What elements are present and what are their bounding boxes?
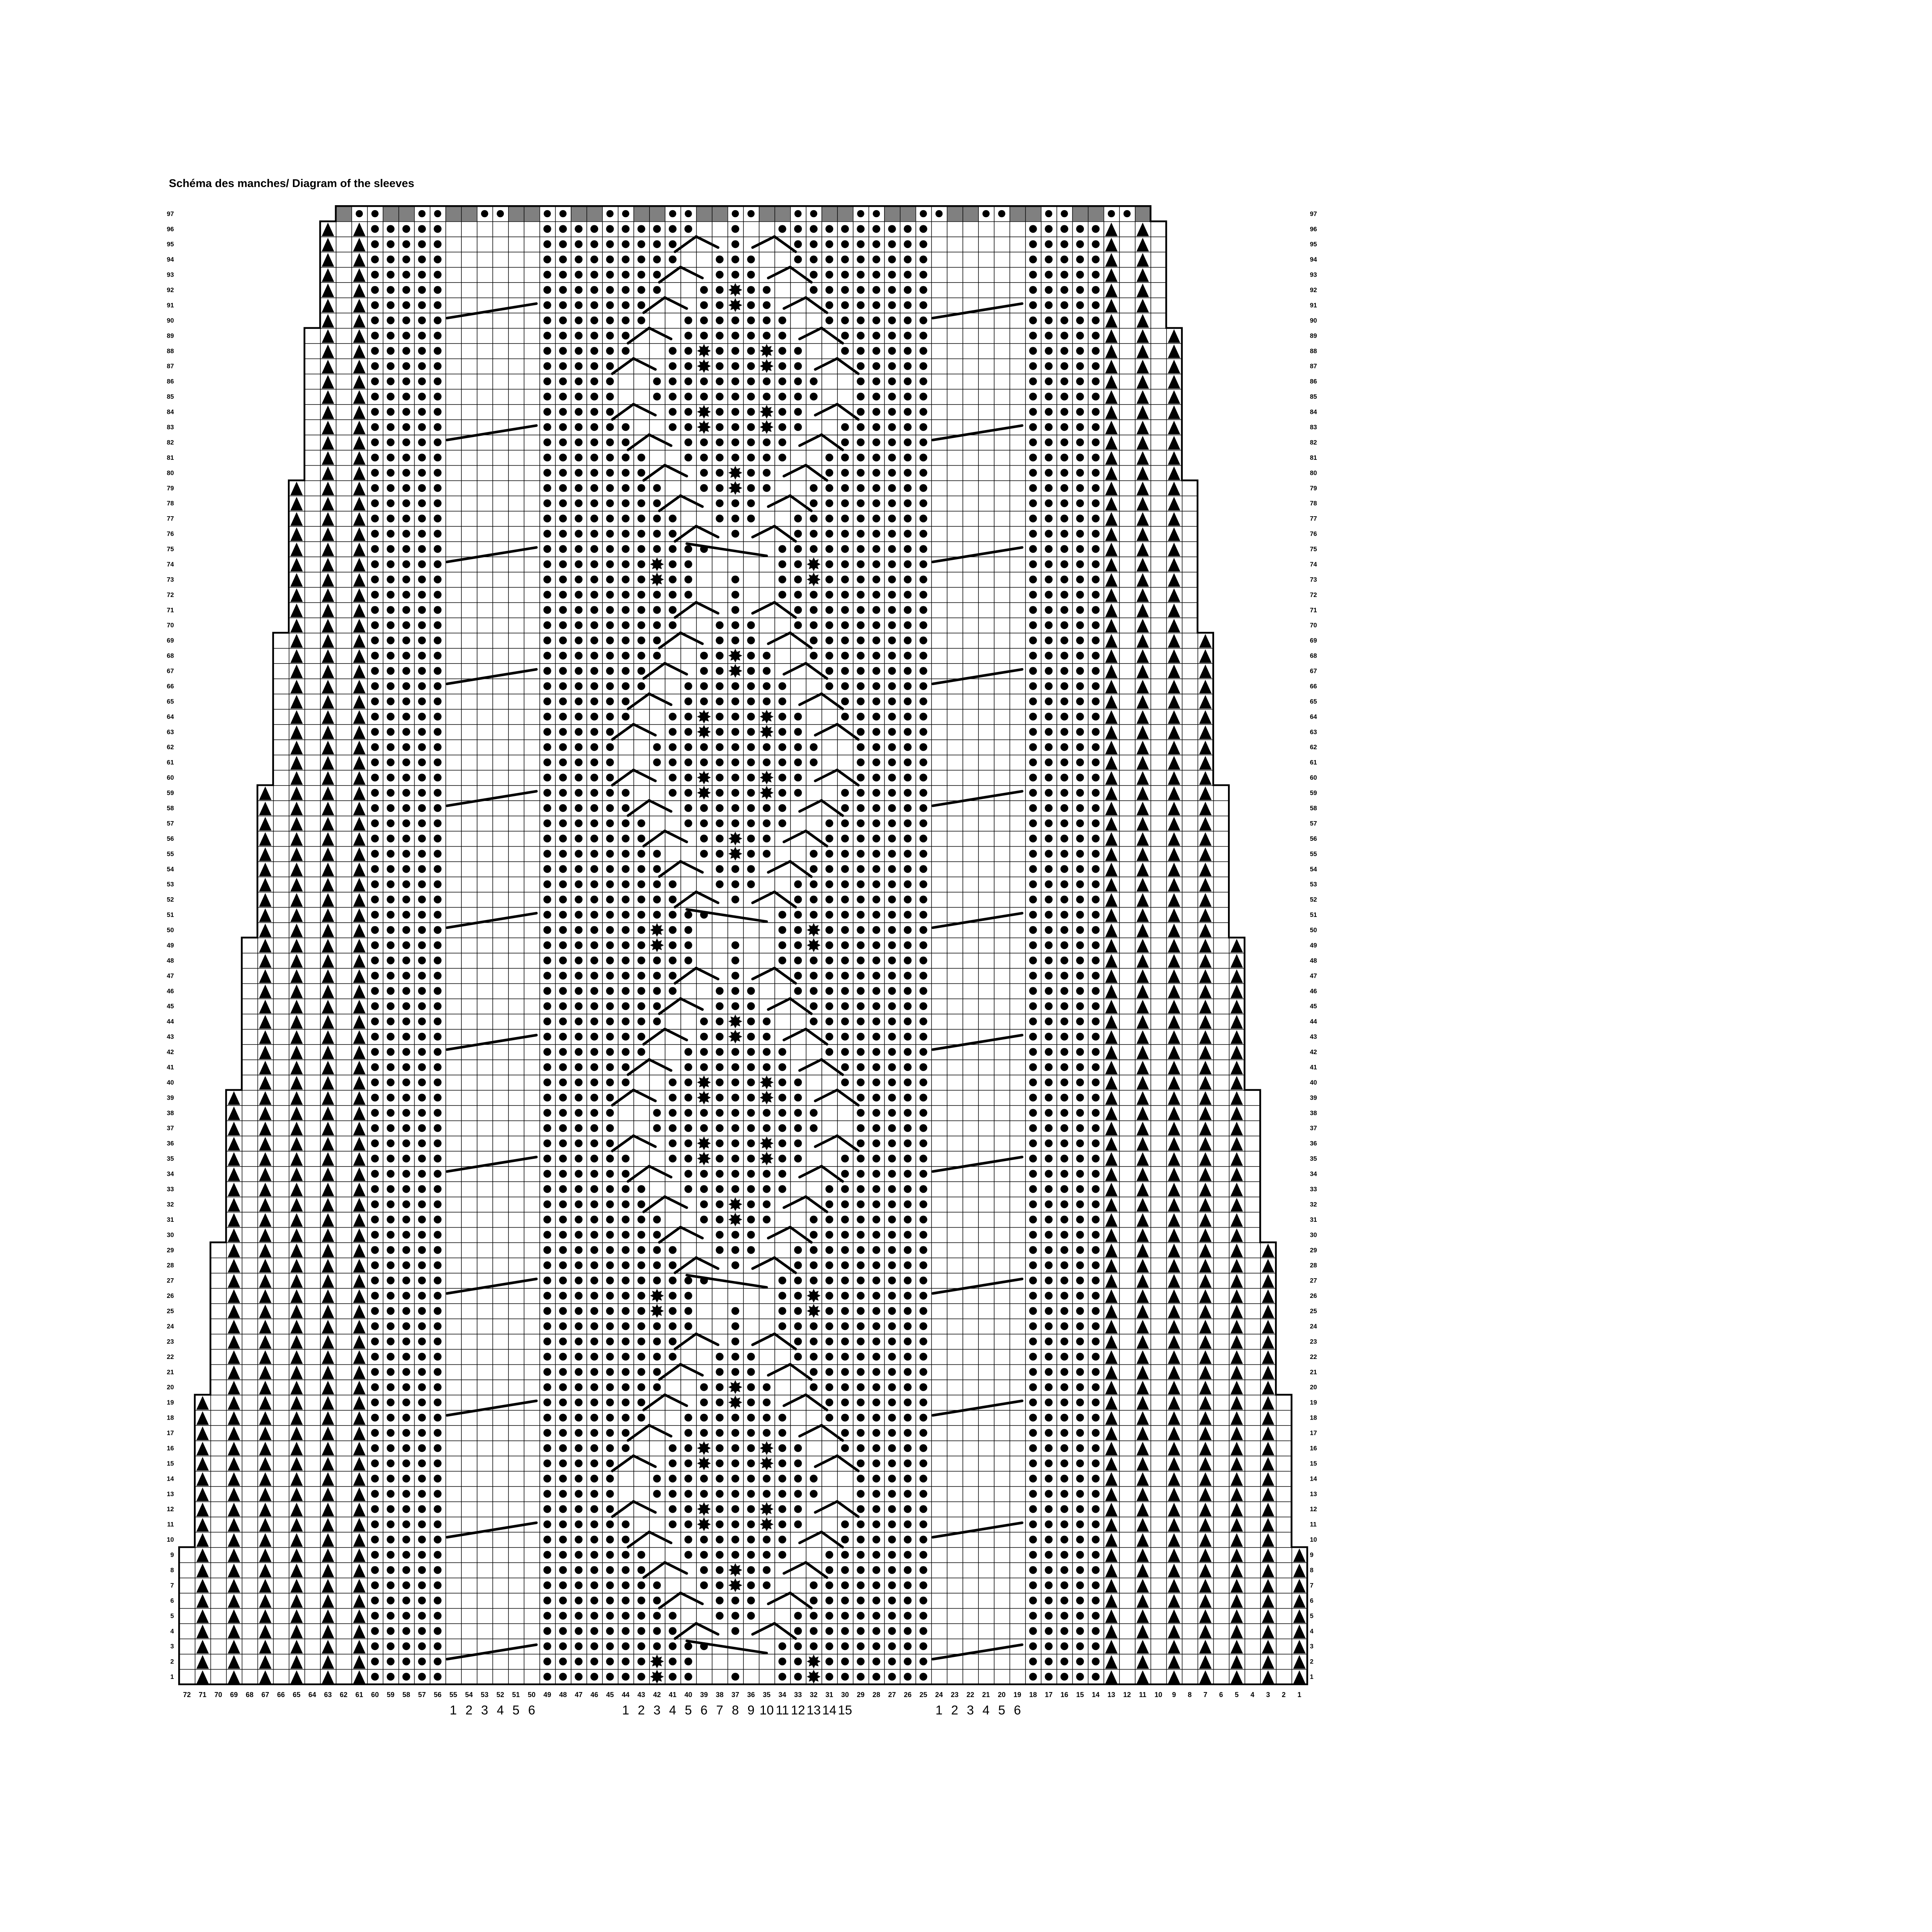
svg-text:29: 29 xyxy=(1310,1247,1317,1254)
svg-text:97: 97 xyxy=(167,211,174,218)
svg-text:69: 69 xyxy=(230,1691,238,1699)
svg-text:46: 46 xyxy=(1310,988,1317,995)
svg-text:38: 38 xyxy=(1310,1110,1317,1117)
svg-text:35: 35 xyxy=(763,1691,770,1699)
svg-text:38: 38 xyxy=(167,1110,174,1117)
svg-text:22: 22 xyxy=(1310,1354,1317,1361)
svg-text:72: 72 xyxy=(167,592,174,599)
svg-text:3: 3 xyxy=(967,1703,974,1717)
svg-text:39: 39 xyxy=(1310,1094,1317,1101)
svg-text:65: 65 xyxy=(1310,698,1317,705)
svg-text:52: 52 xyxy=(1310,896,1317,903)
svg-text:2: 2 xyxy=(638,1703,645,1717)
svg-text:22: 22 xyxy=(167,1354,174,1361)
svg-text:62: 62 xyxy=(167,744,174,751)
svg-text:73: 73 xyxy=(1310,576,1317,583)
svg-text:12: 12 xyxy=(1123,1691,1131,1699)
svg-text:47: 47 xyxy=(1310,973,1317,980)
svg-text:71: 71 xyxy=(199,1691,206,1699)
svg-text:32: 32 xyxy=(1310,1201,1317,1208)
svg-text:91: 91 xyxy=(1310,302,1317,309)
svg-text:75: 75 xyxy=(167,546,174,553)
svg-text:43: 43 xyxy=(167,1034,174,1041)
svg-text:35: 35 xyxy=(167,1155,174,1162)
svg-text:56: 56 xyxy=(1310,835,1317,842)
svg-text:70: 70 xyxy=(214,1691,222,1699)
svg-text:50: 50 xyxy=(1310,927,1317,934)
svg-text:70: 70 xyxy=(1310,622,1317,629)
svg-text:15: 15 xyxy=(1076,1691,1084,1699)
svg-text:26: 26 xyxy=(1310,1293,1317,1299)
svg-text:11: 11 xyxy=(776,1703,789,1717)
svg-text:5: 5 xyxy=(1310,1612,1313,1619)
svg-text:95: 95 xyxy=(167,241,174,248)
svg-text:47: 47 xyxy=(167,973,174,980)
svg-text:85: 85 xyxy=(167,393,174,400)
svg-text:59: 59 xyxy=(167,790,174,797)
svg-text:80: 80 xyxy=(167,469,174,476)
svg-text:72: 72 xyxy=(183,1691,191,1699)
svg-text:51: 51 xyxy=(512,1691,520,1699)
svg-text:61: 61 xyxy=(355,1691,363,1699)
svg-text:12: 12 xyxy=(167,1506,174,1513)
svg-text:81: 81 xyxy=(167,454,174,461)
svg-text:44: 44 xyxy=(167,1018,174,1025)
svg-text:1: 1 xyxy=(1298,1691,1301,1699)
svg-text:15: 15 xyxy=(838,1703,852,1717)
svg-text:30: 30 xyxy=(167,1231,174,1238)
svg-text:2: 2 xyxy=(466,1703,473,1717)
svg-text:52: 52 xyxy=(497,1691,504,1699)
svg-text:13: 13 xyxy=(1310,1491,1317,1498)
svg-text:40: 40 xyxy=(684,1691,692,1699)
svg-text:76: 76 xyxy=(167,531,174,537)
svg-text:41: 41 xyxy=(1310,1064,1317,1071)
svg-text:93: 93 xyxy=(167,272,174,279)
svg-text:40: 40 xyxy=(167,1079,174,1086)
svg-text:13: 13 xyxy=(1107,1691,1115,1699)
svg-text:62: 62 xyxy=(340,1691,347,1699)
svg-text:93: 93 xyxy=(1310,272,1317,279)
svg-text:49: 49 xyxy=(1310,942,1317,949)
svg-text:16: 16 xyxy=(167,1445,174,1452)
svg-text:26: 26 xyxy=(904,1691,912,1699)
svg-text:28: 28 xyxy=(1310,1262,1317,1269)
svg-text:68: 68 xyxy=(167,653,174,660)
svg-text:88: 88 xyxy=(1310,348,1317,355)
svg-text:54: 54 xyxy=(465,1691,473,1699)
svg-text:55: 55 xyxy=(449,1691,457,1699)
svg-text:85: 85 xyxy=(1310,393,1317,400)
svg-text:1: 1 xyxy=(622,1703,629,1717)
svg-text:53: 53 xyxy=(481,1691,488,1699)
svg-text:9: 9 xyxy=(1310,1552,1313,1559)
svg-text:48: 48 xyxy=(167,957,174,964)
svg-text:32: 32 xyxy=(167,1201,174,1208)
svg-text:42: 42 xyxy=(167,1049,174,1056)
svg-text:14: 14 xyxy=(1310,1475,1317,1482)
svg-text:26: 26 xyxy=(167,1293,174,1299)
svg-text:32: 32 xyxy=(810,1691,818,1699)
svg-text:36: 36 xyxy=(167,1140,174,1147)
svg-text:61: 61 xyxy=(1310,759,1317,766)
svg-text:24: 24 xyxy=(167,1323,174,1330)
svg-text:78: 78 xyxy=(1310,500,1317,507)
svg-text:20: 20 xyxy=(1310,1384,1317,1391)
svg-text:37: 37 xyxy=(731,1691,739,1699)
svg-text:48: 48 xyxy=(1310,957,1317,964)
svg-text:95: 95 xyxy=(1310,241,1317,248)
svg-text:19: 19 xyxy=(1310,1399,1317,1406)
svg-text:12: 12 xyxy=(791,1703,805,1717)
svg-text:55: 55 xyxy=(1310,850,1317,857)
svg-text:81: 81 xyxy=(1310,454,1317,461)
svg-text:73: 73 xyxy=(167,576,174,583)
svg-text:1: 1 xyxy=(170,1673,174,1680)
svg-text:79: 79 xyxy=(167,485,174,492)
svg-text:40: 40 xyxy=(1310,1079,1317,1086)
svg-text:7: 7 xyxy=(716,1703,723,1717)
svg-text:5: 5 xyxy=(998,1703,1005,1717)
svg-text:86: 86 xyxy=(1310,378,1317,385)
svg-text:16: 16 xyxy=(1061,1691,1068,1699)
svg-text:34: 34 xyxy=(1310,1171,1317,1178)
svg-text:43: 43 xyxy=(638,1691,645,1699)
svg-text:84: 84 xyxy=(167,409,174,416)
svg-text:84: 84 xyxy=(1310,409,1317,416)
svg-text:17: 17 xyxy=(167,1430,174,1437)
svg-text:78: 78 xyxy=(167,500,174,507)
svg-text:74: 74 xyxy=(167,561,174,568)
svg-text:4: 4 xyxy=(1310,1628,1314,1635)
svg-text:24: 24 xyxy=(1310,1323,1317,1330)
svg-text:9: 9 xyxy=(747,1703,754,1717)
svg-text:20: 20 xyxy=(167,1384,174,1391)
svg-text:57: 57 xyxy=(1310,820,1317,827)
svg-text:39: 39 xyxy=(167,1094,174,1101)
svg-text:31: 31 xyxy=(825,1691,833,1699)
svg-text:86: 86 xyxy=(167,378,174,385)
svg-text:21: 21 xyxy=(167,1369,174,1376)
svg-text:34: 34 xyxy=(779,1691,786,1699)
svg-text:4: 4 xyxy=(669,1703,676,1717)
svg-text:41: 41 xyxy=(167,1064,174,1071)
svg-text:75: 75 xyxy=(1310,546,1317,553)
svg-text:64: 64 xyxy=(308,1691,316,1699)
svg-text:37: 37 xyxy=(1310,1125,1317,1132)
svg-text:12: 12 xyxy=(1310,1506,1317,1513)
svg-text:62: 62 xyxy=(1310,744,1317,751)
svg-text:67: 67 xyxy=(1310,668,1317,675)
svg-text:16: 16 xyxy=(1310,1445,1317,1452)
svg-text:Schéma des manches/ Diagram of: Schéma des manches/ Diagram of the sleev… xyxy=(169,177,414,190)
svg-text:33: 33 xyxy=(1310,1186,1317,1193)
svg-text:6: 6 xyxy=(170,1597,174,1604)
svg-text:23: 23 xyxy=(1310,1338,1317,1345)
svg-text:58: 58 xyxy=(1310,805,1317,812)
svg-text:54: 54 xyxy=(167,866,174,873)
svg-text:96: 96 xyxy=(167,226,174,233)
svg-text:63: 63 xyxy=(167,729,174,736)
svg-text:6: 6 xyxy=(528,1703,535,1717)
svg-text:94: 94 xyxy=(167,256,174,263)
svg-text:46: 46 xyxy=(590,1691,598,1699)
svg-text:36: 36 xyxy=(747,1691,755,1699)
svg-text:27: 27 xyxy=(1310,1277,1317,1284)
svg-text:2: 2 xyxy=(1310,1658,1313,1665)
svg-text:18: 18 xyxy=(167,1415,174,1422)
svg-text:11: 11 xyxy=(1139,1691,1146,1699)
svg-text:72: 72 xyxy=(1310,592,1317,599)
svg-text:3: 3 xyxy=(1310,1643,1313,1650)
svg-text:23: 23 xyxy=(167,1338,174,1345)
svg-text:28: 28 xyxy=(167,1262,174,1269)
svg-text:8: 8 xyxy=(1188,1691,1192,1699)
svg-text:15: 15 xyxy=(1310,1460,1317,1467)
svg-text:7: 7 xyxy=(170,1582,174,1589)
svg-text:54: 54 xyxy=(1310,866,1317,873)
svg-text:42: 42 xyxy=(653,1691,661,1699)
svg-text:27: 27 xyxy=(167,1277,174,1284)
svg-text:6: 6 xyxy=(1310,1597,1313,1604)
svg-text:60: 60 xyxy=(1310,774,1317,781)
svg-text:58: 58 xyxy=(167,805,174,812)
svg-text:64: 64 xyxy=(167,713,174,720)
svg-text:49: 49 xyxy=(167,942,174,949)
svg-text:79: 79 xyxy=(1310,485,1317,492)
svg-text:44: 44 xyxy=(622,1691,629,1699)
svg-text:10: 10 xyxy=(167,1536,174,1543)
svg-text:46: 46 xyxy=(167,988,174,995)
svg-text:19: 19 xyxy=(167,1399,174,1406)
svg-text:77: 77 xyxy=(167,515,174,522)
svg-text:61: 61 xyxy=(167,759,174,766)
svg-text:80: 80 xyxy=(1310,469,1317,476)
svg-text:67: 67 xyxy=(167,668,174,675)
svg-text:89: 89 xyxy=(1310,332,1317,339)
svg-text:2: 2 xyxy=(1282,1691,1286,1699)
svg-text:45: 45 xyxy=(1310,1003,1317,1010)
svg-text:1: 1 xyxy=(935,1703,942,1717)
svg-text:60: 60 xyxy=(371,1691,379,1699)
svg-text:66: 66 xyxy=(167,683,174,690)
svg-text:63: 63 xyxy=(1310,729,1317,736)
svg-text:69: 69 xyxy=(1310,637,1317,644)
svg-text:9: 9 xyxy=(170,1552,174,1559)
svg-text:17: 17 xyxy=(1045,1691,1053,1699)
svg-text:4: 4 xyxy=(983,1703,990,1717)
svg-text:67: 67 xyxy=(261,1691,269,1699)
svg-text:90: 90 xyxy=(167,317,174,324)
svg-text:33: 33 xyxy=(167,1186,174,1193)
svg-text:28: 28 xyxy=(872,1691,880,1699)
svg-text:4: 4 xyxy=(497,1703,504,1717)
svg-text:38: 38 xyxy=(716,1691,723,1699)
svg-text:69: 69 xyxy=(167,637,174,644)
svg-text:5: 5 xyxy=(1235,1691,1239,1699)
svg-text:71: 71 xyxy=(167,607,174,614)
svg-text:91: 91 xyxy=(167,302,174,309)
svg-text:87: 87 xyxy=(167,363,174,370)
svg-text:57: 57 xyxy=(167,820,174,827)
svg-text:4: 4 xyxy=(170,1628,174,1635)
svg-text:70: 70 xyxy=(167,622,174,629)
svg-text:48: 48 xyxy=(559,1691,567,1699)
svg-text:43: 43 xyxy=(1310,1034,1317,1041)
svg-text:2: 2 xyxy=(951,1703,958,1717)
svg-text:68: 68 xyxy=(1310,653,1317,660)
svg-text:15: 15 xyxy=(167,1460,174,1467)
svg-text:10: 10 xyxy=(760,1703,774,1717)
svg-text:53: 53 xyxy=(167,881,174,888)
svg-text:76: 76 xyxy=(1310,531,1317,537)
svg-text:68: 68 xyxy=(246,1691,253,1699)
svg-text:97: 97 xyxy=(1310,211,1317,218)
svg-text:56: 56 xyxy=(434,1691,442,1699)
svg-text:21: 21 xyxy=(1310,1369,1317,1376)
svg-text:50: 50 xyxy=(528,1691,536,1699)
svg-text:3: 3 xyxy=(653,1703,660,1717)
svg-text:92: 92 xyxy=(167,287,174,294)
svg-text:22: 22 xyxy=(966,1691,974,1699)
svg-text:30: 30 xyxy=(1310,1231,1317,1238)
svg-text:13: 13 xyxy=(806,1703,821,1717)
svg-text:35: 35 xyxy=(1310,1155,1317,1162)
svg-text:29: 29 xyxy=(857,1691,864,1699)
svg-text:45: 45 xyxy=(606,1691,614,1699)
svg-text:58: 58 xyxy=(402,1691,410,1699)
svg-text:21: 21 xyxy=(982,1691,990,1699)
svg-text:30: 30 xyxy=(841,1691,849,1699)
svg-text:2: 2 xyxy=(170,1658,174,1665)
svg-text:82: 82 xyxy=(1310,439,1317,446)
svg-text:8: 8 xyxy=(170,1567,174,1574)
svg-text:5: 5 xyxy=(170,1612,174,1619)
svg-text:11: 11 xyxy=(167,1521,174,1528)
svg-text:51: 51 xyxy=(1310,912,1317,918)
svg-text:4: 4 xyxy=(1250,1691,1254,1699)
svg-text:25: 25 xyxy=(1310,1308,1317,1315)
svg-text:83: 83 xyxy=(1310,424,1317,431)
svg-text:1: 1 xyxy=(1310,1673,1313,1680)
svg-text:49: 49 xyxy=(543,1691,551,1699)
svg-text:3: 3 xyxy=(481,1703,488,1717)
svg-text:8: 8 xyxy=(1310,1567,1313,1574)
svg-text:14: 14 xyxy=(1092,1691,1100,1699)
svg-text:23: 23 xyxy=(951,1691,959,1699)
svg-text:6: 6 xyxy=(1014,1703,1021,1717)
svg-text:47: 47 xyxy=(575,1691,582,1699)
svg-text:65: 65 xyxy=(293,1691,301,1699)
svg-text:83: 83 xyxy=(167,424,174,431)
svg-text:37: 37 xyxy=(167,1125,174,1132)
svg-text:10: 10 xyxy=(1310,1536,1317,1543)
svg-text:64: 64 xyxy=(1310,713,1317,720)
svg-text:31: 31 xyxy=(167,1216,174,1223)
svg-text:27: 27 xyxy=(888,1691,896,1699)
svg-text:31: 31 xyxy=(1310,1216,1317,1223)
svg-text:52: 52 xyxy=(167,896,174,903)
svg-text:94: 94 xyxy=(1310,256,1317,263)
svg-text:41: 41 xyxy=(669,1691,677,1699)
svg-text:24: 24 xyxy=(935,1691,943,1699)
svg-text:33: 33 xyxy=(794,1691,802,1699)
svg-text:59: 59 xyxy=(387,1691,395,1699)
svg-text:60: 60 xyxy=(167,774,174,781)
svg-text:29: 29 xyxy=(167,1247,174,1254)
svg-text:1: 1 xyxy=(450,1703,457,1717)
svg-text:5: 5 xyxy=(685,1703,692,1717)
svg-text:6: 6 xyxy=(701,1703,707,1717)
svg-text:44: 44 xyxy=(1310,1018,1317,1025)
svg-text:71: 71 xyxy=(1310,607,1317,614)
svg-text:11: 11 xyxy=(1310,1521,1316,1528)
svg-text:57: 57 xyxy=(418,1691,426,1699)
svg-text:34: 34 xyxy=(167,1171,174,1178)
svg-text:18: 18 xyxy=(1310,1415,1317,1422)
svg-text:7: 7 xyxy=(1203,1691,1207,1699)
svg-text:3: 3 xyxy=(170,1643,174,1650)
svg-text:7: 7 xyxy=(1310,1582,1313,1589)
svg-text:66: 66 xyxy=(277,1691,285,1699)
svg-text:10: 10 xyxy=(1155,1691,1162,1699)
svg-text:51: 51 xyxy=(167,912,174,918)
svg-text:56: 56 xyxy=(167,835,174,842)
svg-text:14: 14 xyxy=(167,1475,174,1482)
svg-text:5: 5 xyxy=(512,1703,519,1717)
svg-text:13: 13 xyxy=(167,1491,174,1498)
svg-text:42: 42 xyxy=(1310,1049,1317,1056)
svg-text:8: 8 xyxy=(732,1703,739,1717)
svg-text:65: 65 xyxy=(167,698,174,705)
svg-text:89: 89 xyxy=(167,332,174,339)
svg-text:55: 55 xyxy=(167,850,174,857)
svg-text:17: 17 xyxy=(1310,1430,1317,1437)
svg-text:39: 39 xyxy=(700,1691,708,1699)
svg-text:36: 36 xyxy=(1310,1140,1317,1147)
svg-text:88: 88 xyxy=(167,348,174,355)
svg-text:19: 19 xyxy=(1014,1691,1021,1699)
svg-text:59: 59 xyxy=(1310,790,1317,797)
svg-text:66: 66 xyxy=(1310,683,1317,690)
svg-text:77: 77 xyxy=(1310,515,1317,522)
svg-text:74: 74 xyxy=(1310,561,1317,568)
svg-text:87: 87 xyxy=(1310,363,1317,370)
svg-text:25: 25 xyxy=(167,1308,174,1315)
svg-text:92: 92 xyxy=(1310,287,1317,294)
svg-text:45: 45 xyxy=(167,1003,174,1010)
svg-text:82: 82 xyxy=(167,439,174,446)
svg-text:18: 18 xyxy=(1029,1691,1037,1699)
svg-text:14: 14 xyxy=(822,1703,837,1717)
svg-text:3: 3 xyxy=(1266,1691,1270,1699)
svg-text:50: 50 xyxy=(167,927,174,934)
svg-text:20: 20 xyxy=(998,1691,1005,1699)
svg-text:53: 53 xyxy=(1310,881,1317,888)
svg-text:96: 96 xyxy=(1310,226,1317,233)
svg-text:25: 25 xyxy=(920,1691,927,1699)
svg-text:90: 90 xyxy=(1310,317,1317,324)
svg-text:9: 9 xyxy=(1172,1691,1176,1699)
svg-text:63: 63 xyxy=(324,1691,332,1699)
svg-text:6: 6 xyxy=(1219,1691,1223,1699)
